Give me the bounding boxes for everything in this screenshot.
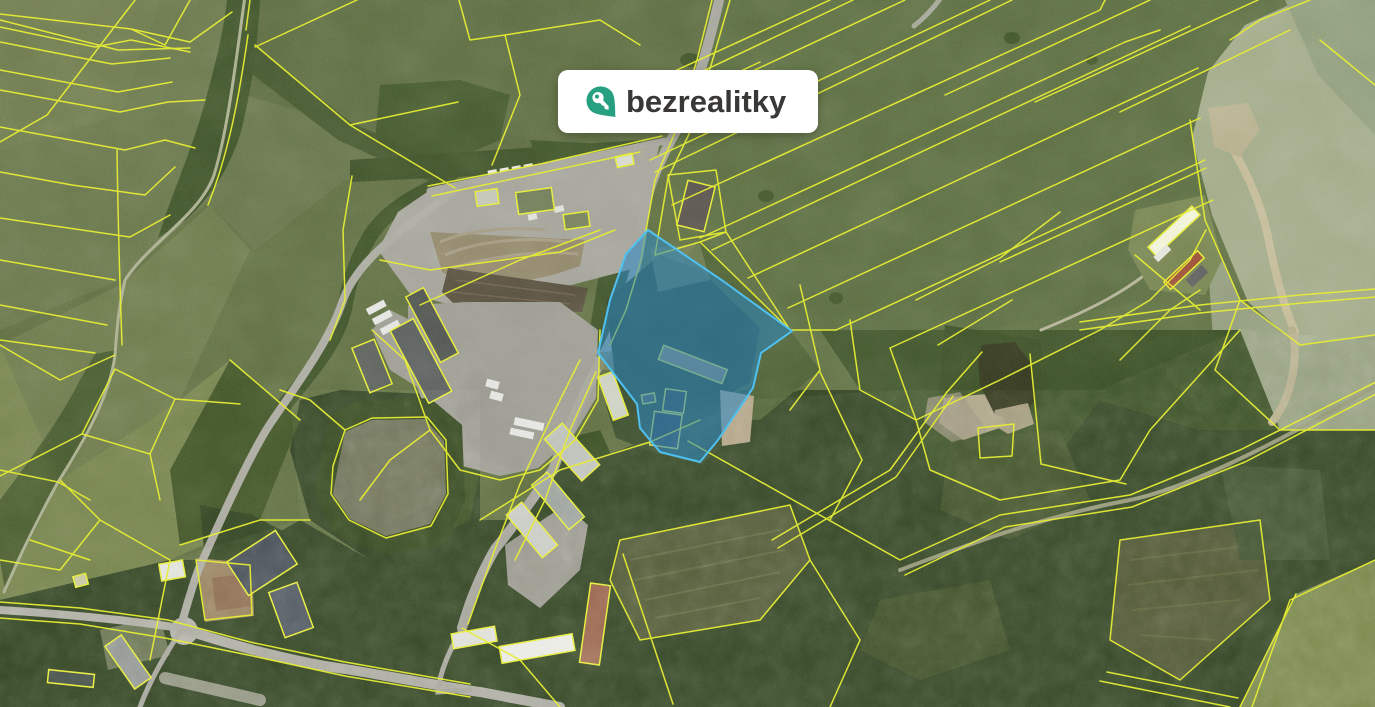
- svg-text:bezrealitky: bezrealitky: [626, 84, 787, 119]
